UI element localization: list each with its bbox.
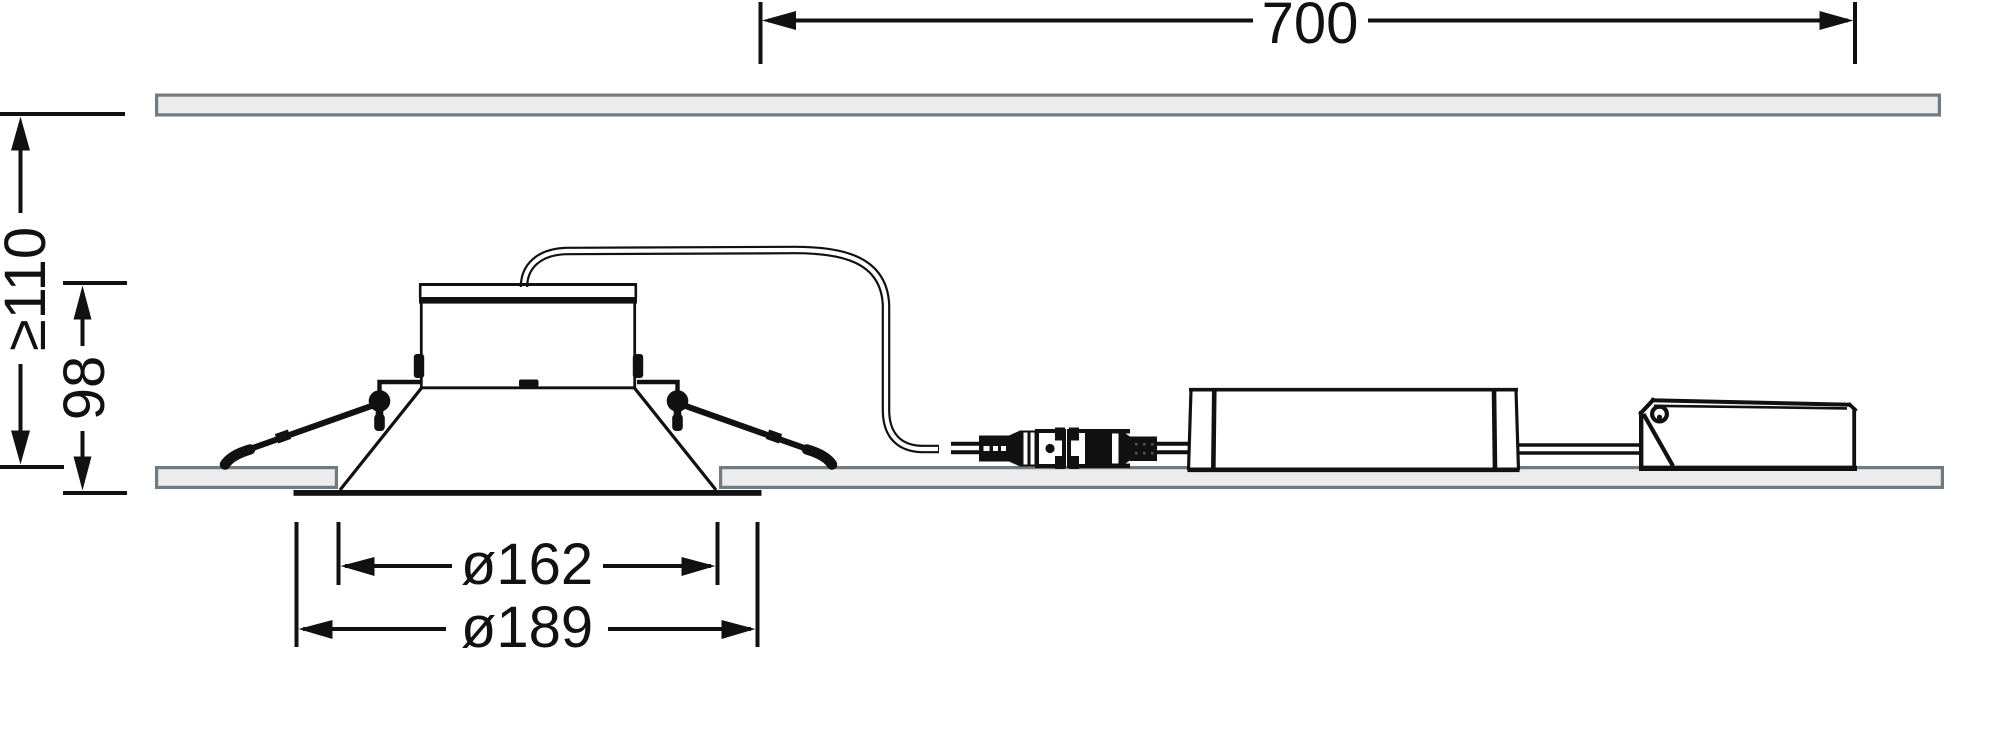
svg-text:ø162: ø162 (461, 532, 593, 597)
svg-text:≥110: ≥110 (0, 227, 58, 351)
svg-text:ø189: ø189 (461, 595, 593, 660)
svg-text:98: 98 (52, 356, 117, 421)
svg-text:700: 700 (1262, 0, 1359, 56)
